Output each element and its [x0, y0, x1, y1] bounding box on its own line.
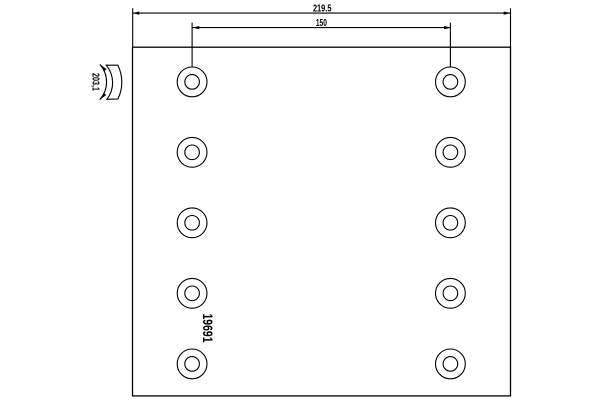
svg-text:150: 150	[316, 18, 327, 29]
svg-text:203,1: 203,1	[89, 73, 100, 91]
svg-text:219.5: 219.5	[313, 4, 332, 15]
svg-text:19691: 19691	[200, 314, 215, 343]
